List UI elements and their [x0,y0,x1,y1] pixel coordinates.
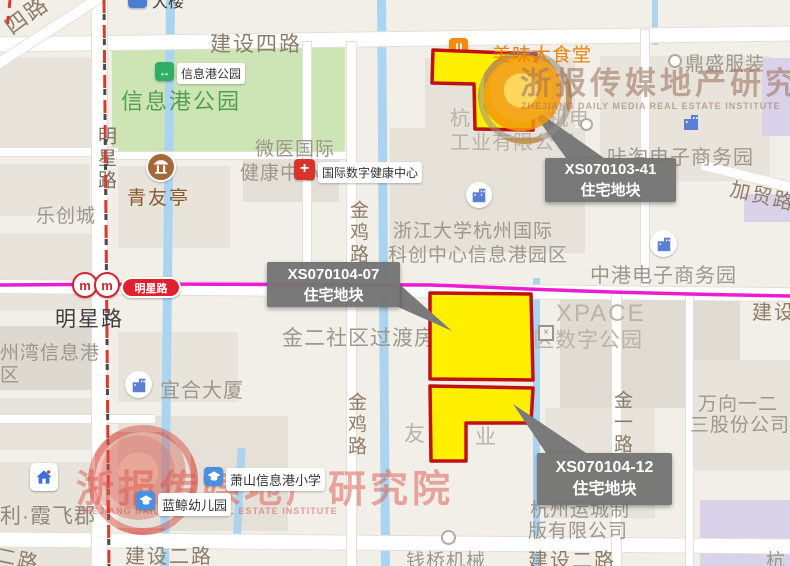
park-name-label: 信息港公园 [121,84,241,116]
poi-dot[interactable] [441,530,456,545]
building-glyph [470,186,488,204]
building-icon[interactable] [466,182,492,208]
building-glyph [130,376,148,394]
parcel-id: XS070104-12 [537,457,672,479]
building-icon[interactable] [650,230,677,257]
watermark-subtext: ZHEJIANG DAILY MEDIA REAL ESTATE INSTITU… [521,101,781,111]
metro-station-badge[interactable]: 明星路 [121,277,181,298]
building-icon[interactable] [125,371,152,398]
gate-icon: × [538,325,554,341]
map-canvas[interactable]: 杭 机电 工业有限公司 友 业 杭州运城制 版有限公司 XS070103-41 … [0,0,790,566]
house-glyph [34,467,54,487]
poi-dot[interactable] [668,54,682,68]
school-label[interactable]: 萧山信息港小学 [226,468,325,491]
grad-cap-glyph [206,469,222,485]
building-icon[interactable] [681,112,701,132]
parcel-callout-1: XS070103-41 住宅地块 [545,158,676,202]
grad-cap-glyph [138,493,154,509]
road-label-mingxing-horizontal: 明星路 [55,303,124,333]
park-poi-label[interactable]: 信息港公园 [177,63,245,84]
parcel-XS070104-07[interactable] [430,293,533,380]
parcel-callout-3: XS070104-12 住宅地块 [537,453,672,505]
parcel-id: XS070104-07 [267,264,400,285]
building-glyph [655,235,673,253]
home-icon[interactable] [30,463,58,491]
parcel-callout-2: XS070104-07 住宅地块 [267,262,400,307]
pavilion-icon[interactable] [146,152,176,182]
hospital-label[interactable]: 国际数字健康中心 [318,162,422,183]
park-icon[interactable]: ↔ [155,62,174,81]
callout-pointer-3 [513,404,586,453]
clipped-top-poi-label: 大楼 [152,0,184,12]
school-icon[interactable] [204,467,223,486]
district-boundary [7,0,10,30]
building-glyph [681,112,701,132]
hospital-icon[interactable]: + [294,159,315,180]
kindergarten-label[interactable]: 蓝鲸幼儿园 [158,493,231,516]
parcel-type: 住宅地块 [537,479,672,501]
restaurant-label: 美味大食堂 [492,40,592,67]
clipped-top-poi-icon[interactable] [128,0,147,8]
pavilion-label: 青友亭 [127,183,190,210]
metro-logo-icon[interactable]: m [94,272,120,298]
parcel-XS070104-12[interactable] [430,386,533,461]
parcel-type: 住宅地块 [545,180,676,201]
poi-dot[interactable] [580,118,593,131]
parcel-id: XS070103-41 [545,159,676,180]
pavilion-glyph [151,157,171,177]
parcel-type: 住宅地块 [267,285,400,306]
kindergarten-icon[interactable] [136,491,155,510]
